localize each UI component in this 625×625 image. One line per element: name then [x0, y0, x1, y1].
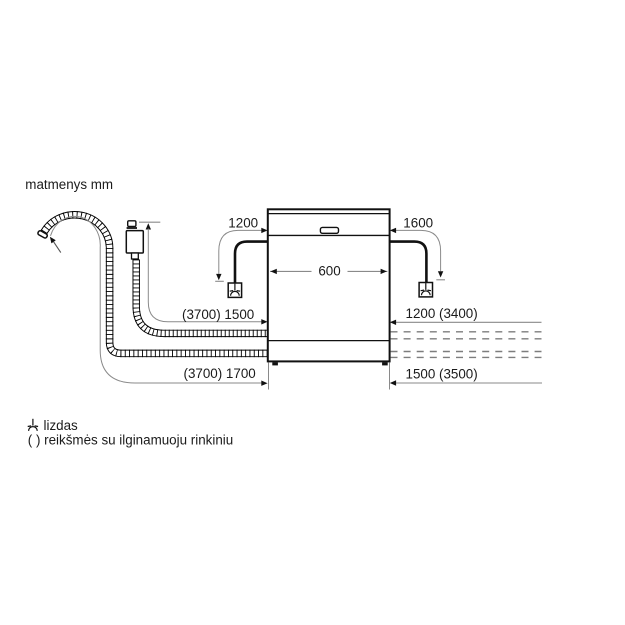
- svg-text:1500 (3500): 1500 (3500): [406, 367, 478, 382]
- svg-text:( ) reikšmės su ilginamuoju ri: ( ) reikšmės su ilginamuoju rinkiniu: [28, 433, 233, 448]
- svg-text:lizdas: lizdas: [44, 418, 79, 433]
- svg-text:(3700) 1500: (3700) 1500: [182, 307, 254, 322]
- svg-text:1200: 1200: [228, 216, 258, 231]
- svg-text:1200 (3400): 1200 (3400): [406, 306, 478, 321]
- svg-text:600: 600: [318, 264, 340, 279]
- svg-text:matmenys mm: matmenys mm: [25, 177, 113, 192]
- svg-text:(3700) 1700: (3700) 1700: [184, 366, 256, 381]
- svg-text:1600: 1600: [403, 216, 433, 231]
